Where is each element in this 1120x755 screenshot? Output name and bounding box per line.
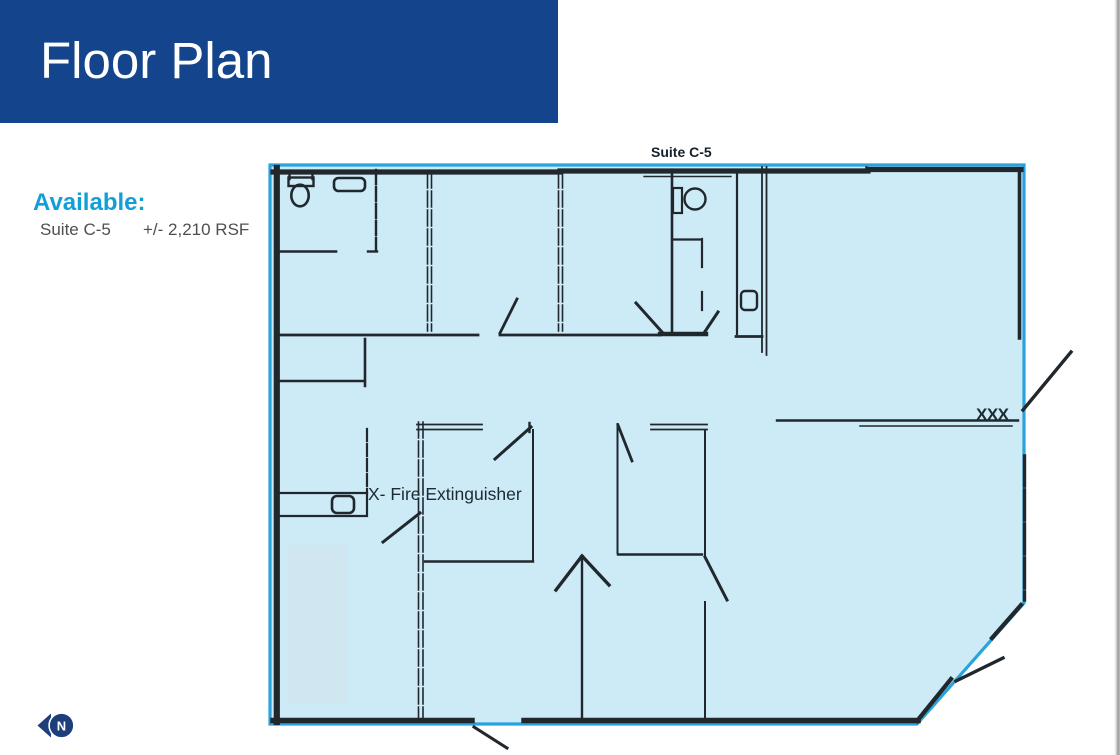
svg-text:X- Fire Extinguisher: X- Fire Extinguisher: [368, 484, 522, 504]
svg-text:XXX: XXX: [976, 405, 1010, 424]
svg-text:N: N: [57, 719, 66, 734]
